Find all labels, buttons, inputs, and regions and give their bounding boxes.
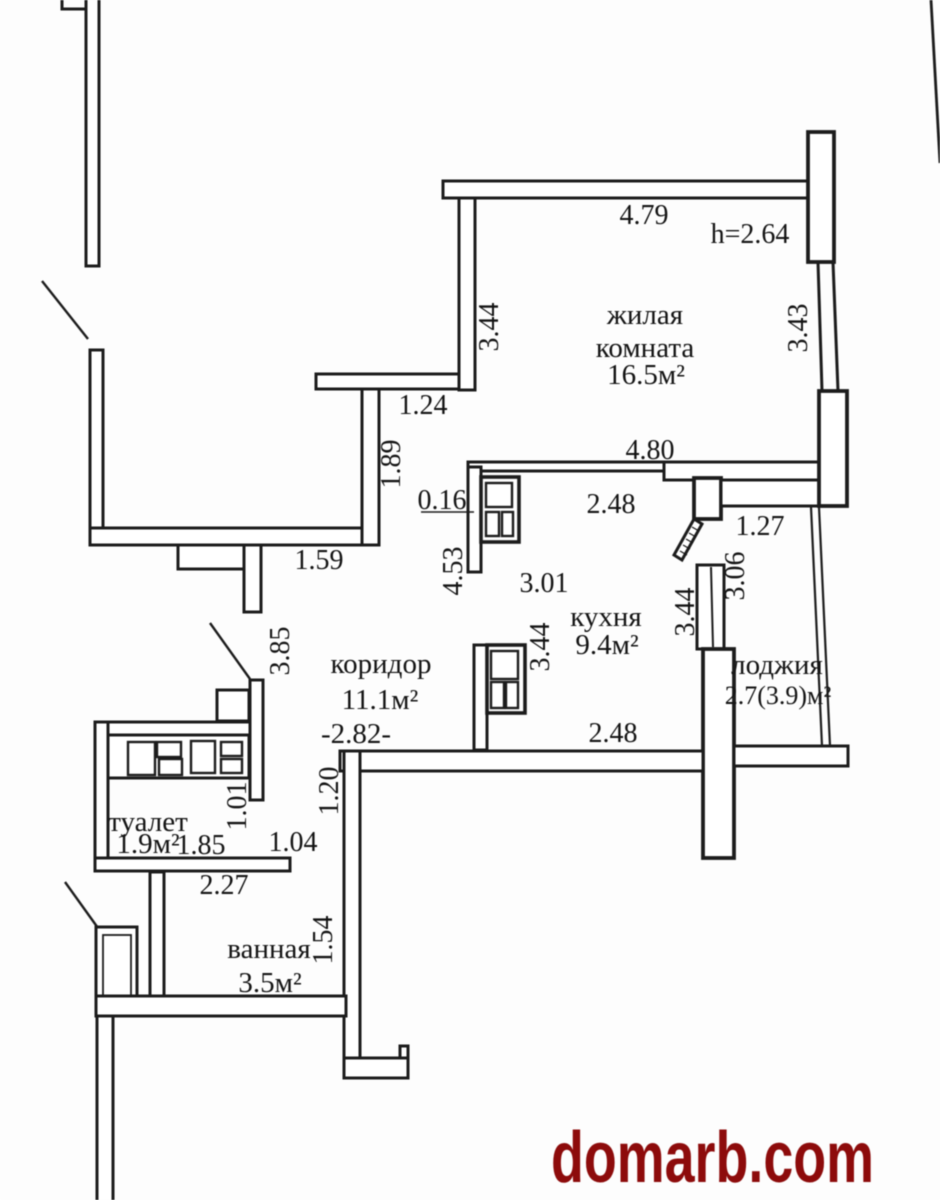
svg-text:0.16: 0.16 (418, 485, 467, 516)
svg-text:лоджия: лоджия (731, 649, 823, 681)
svg-text:domarb.com: domarb.com (551, 1118, 874, 1198)
svg-text:1.24: 1.24 (399, 390, 448, 421)
svg-text:3.01: 3.01 (520, 568, 569, 599)
svg-text:h=2.64: h=2.64 (711, 219, 790, 250)
svg-text:4.80: 4.80 (626, 435, 675, 466)
svg-text:3.06: 3.06 (720, 552, 751, 601)
svg-text:3.5м²: 3.5м² (238, 967, 302, 999)
svg-text:2.27: 2.27 (200, 870, 249, 901)
svg-text:1.27: 1.27 (736, 511, 785, 542)
svg-text:-2.82-: -2.82- (321, 718, 391, 750)
svg-text:11.1м²: 11.1м² (342, 684, 419, 716)
svg-text:1.59: 1.59 (295, 545, 344, 576)
svg-text:9.4м²: 9.4м² (575, 629, 639, 661)
svg-text:3.85: 3.85 (265, 627, 296, 676)
svg-text:2.48: 2.48 (587, 489, 636, 520)
svg-text:1.04: 1.04 (269, 827, 318, 858)
svg-text:3.44: 3.44 (474, 303, 505, 352)
svg-text:16.5м²: 16.5м² (607, 359, 685, 391)
svg-text:2.7(3.9)м²: 2.7(3.9)м² (725, 681, 832, 710)
svg-text:4.53: 4.53 (438, 547, 469, 596)
svg-text:1.20: 1.20 (314, 767, 345, 816)
svg-text:коридор: коридор (331, 648, 432, 680)
svg-text:1.89: 1.89 (376, 440, 407, 489)
svg-text:3.44: 3.44 (525, 623, 556, 672)
svg-text:4.79: 4.79 (620, 200, 669, 231)
svg-text:1.85: 1.85 (177, 830, 226, 861)
svg-text:1.9м²: 1.9м² (116, 828, 180, 860)
svg-text:2.48: 2.48 (589, 718, 638, 749)
svg-text:3.43: 3.43 (783, 304, 814, 353)
svg-text:ванная: ванная (227, 933, 310, 965)
svg-text:1.01: 1.01 (222, 782, 253, 831)
svg-text:1.54: 1.54 (308, 916, 339, 965)
svg-text:жилая: жилая (606, 299, 683, 331)
svg-text:3.44: 3.44 (670, 588, 701, 637)
